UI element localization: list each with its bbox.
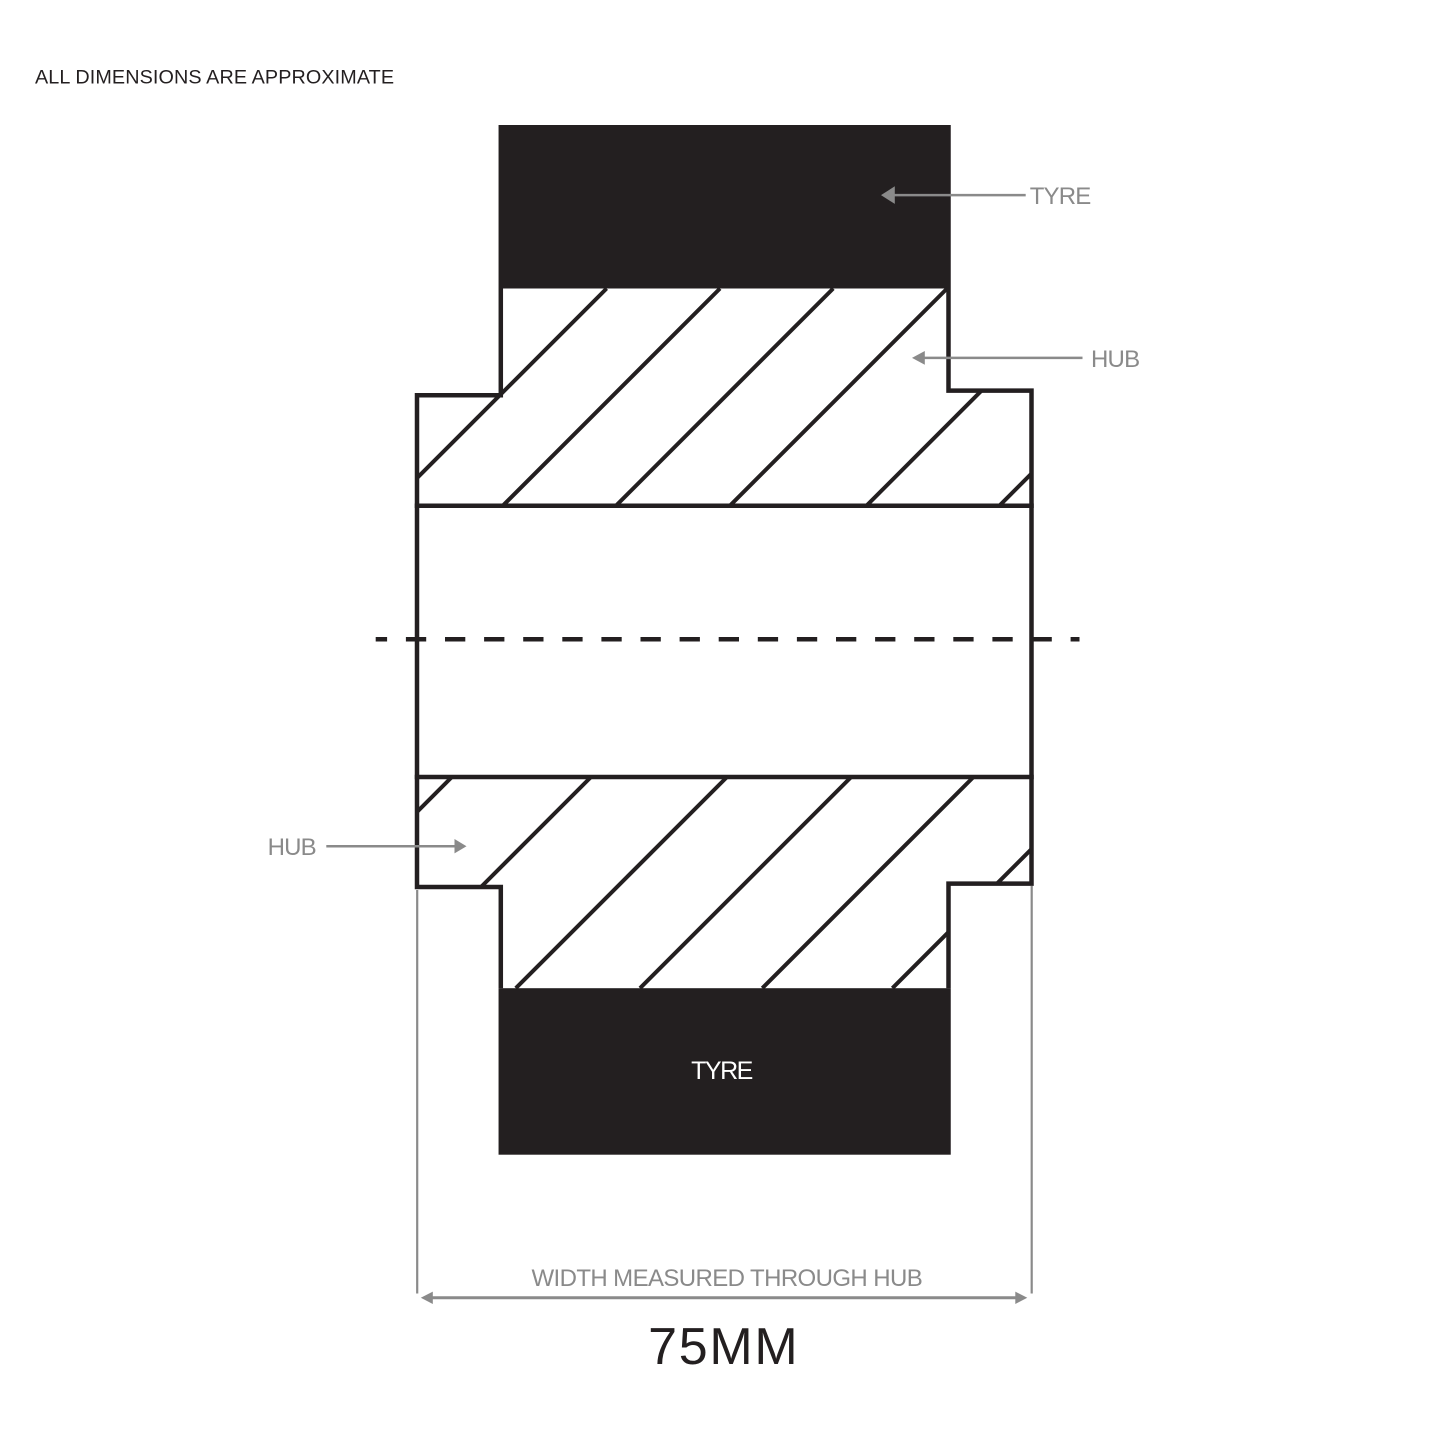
svg-text:WIDTH MEASURED THROUGH HUB: WIDTH MEASURED THROUGH HUB [531, 1265, 922, 1292]
svg-text:TYRE: TYRE [691, 1057, 753, 1085]
svg-text:ALL DIMENSIONS ARE APPROXIMATE: ALL DIMENSIONS ARE APPROXIMATE [35, 67, 394, 89]
svg-text:TYRE: TYRE [1030, 183, 1091, 210]
svg-text:75MM: 75MM [648, 1318, 799, 1376]
svg-text:HUB: HUB [268, 834, 316, 861]
svg-text:HUB: HUB [1091, 346, 1139, 373]
